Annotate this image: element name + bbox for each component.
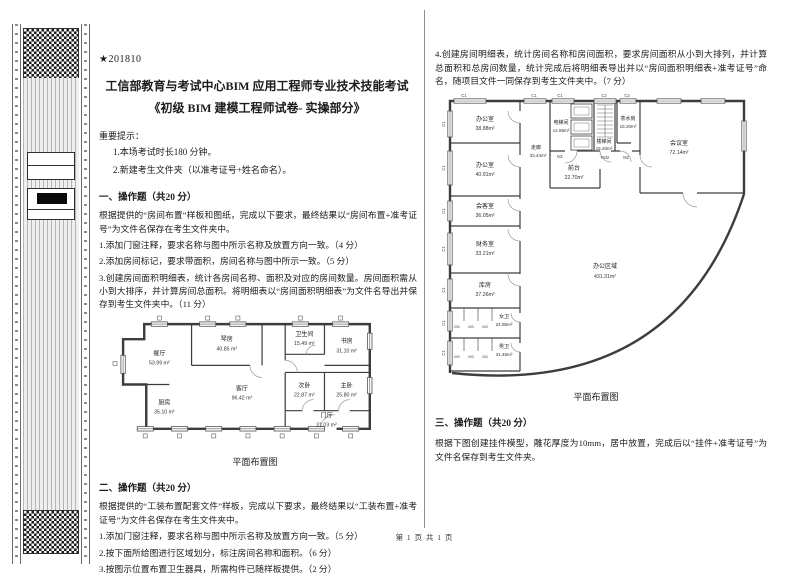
room-label: 茶水房 bbox=[620, 115, 635, 122]
window-tag: C1 bbox=[441, 208, 446, 214]
column-divider bbox=[424, 10, 425, 528]
crosshatch-block-top bbox=[23, 28, 79, 80]
room-label: 财务室 bbox=[476, 240, 494, 248]
binding-rail-right bbox=[81, 24, 90, 564]
room-area: 37.26m² bbox=[475, 292, 494, 298]
door-tag: M3 bbox=[482, 325, 487, 329]
room-label: 客厅 bbox=[236, 385, 248, 393]
door-tag: M3 bbox=[482, 355, 487, 359]
strip-black-mark bbox=[37, 193, 67, 204]
window-tag: C1 bbox=[441, 121, 446, 127]
window-tag: C1 bbox=[441, 320, 446, 326]
exam-title-line2: 《初级 BIM 建模工程师试卷- 实操部分》 bbox=[97, 99, 417, 116]
room-label: 书房 bbox=[341, 337, 353, 345]
window-tag: C1 bbox=[441, 350, 446, 356]
left-column: ★201810 工信部教育与考试中心BIM 应用工程师专业技术技能考试 《初级 … bbox=[97, 8, 417, 576]
door-tag: M3 bbox=[454, 355, 459, 359]
room-label: 琴房 bbox=[221, 335, 233, 343]
window-tag: C1 bbox=[461, 93, 467, 98]
page-footer: 第 1 页 共 1 页 bbox=[352, 532, 497, 543]
binding-strip bbox=[12, 10, 90, 568]
door-tag: M3 bbox=[468, 325, 473, 329]
crosshatch-block-bottom bbox=[23, 510, 79, 554]
room-label: 楼梯间 bbox=[596, 138, 611, 145]
floor-plan-1-svg: 餐厅 53.99 m² 琴房 40.85 m² 卫生间 15.49 m² 书房 … bbox=[109, 315, 401, 448]
exam-title-line1: 工信部教育与考试中心BIM 应用工程师专业技术技能考试 bbox=[97, 77, 417, 94]
section3-heading: 三、操作题（共20 分） bbox=[435, 415, 767, 429]
room-label: 电梯间 bbox=[553, 119, 568, 126]
binding-strip-inner bbox=[23, 24, 79, 564]
section1-heading: 一、操作题（共20 分） bbox=[99, 189, 417, 203]
room-label: 主卧 bbox=[341, 382, 353, 390]
room-label: 会客室 bbox=[476, 202, 494, 210]
window-tag: C1 bbox=[531, 93, 537, 98]
room-label: 会议室 bbox=[670, 139, 688, 147]
room-area: 40.91m² bbox=[475, 172, 494, 178]
section2-item-3: 3.按图示位置布置卫生器具，所需构件已随样板提供。（2 分） bbox=[99, 563, 417, 576]
door-tag: M3 bbox=[468, 355, 473, 359]
strip-label-box-2 bbox=[27, 188, 75, 220]
room-area: 22.70m² bbox=[564, 175, 583, 181]
section3-intro: 根据下图创建挂件模型，雕花厚度为10mm，居中放置，完成后以“挂件+准考证号”为… bbox=[435, 437, 767, 464]
room-area: 25.80 m² bbox=[336, 393, 357, 399]
floor-plan-2: C1 C1 C1 C2 C2 C1 C1 C1 C1 C1 C1 C1 M1 F… bbox=[437, 91, 767, 388]
window-tag: C1 bbox=[441, 287, 446, 293]
room-area: 15.20m² bbox=[596, 146, 613, 151]
room-area: 31.45m² bbox=[496, 352, 513, 357]
barcode-lines bbox=[23, 78, 79, 512]
notice-heading: 重要提示： bbox=[99, 129, 417, 142]
room-area: 15.49 m² bbox=[294, 341, 315, 347]
room-label: 卫生间 bbox=[295, 330, 313, 338]
right-column: 4.创建房间明细表，统计房间名称和房间面积，要求房间面积从小到大排列，并计算总面… bbox=[433, 8, 767, 464]
exam-code: ★201810 bbox=[99, 54, 417, 65]
strip-box-divider-2 bbox=[28, 209, 74, 210]
room-area: 33.44m² bbox=[530, 153, 547, 158]
room-area: 14.85m² bbox=[553, 128, 570, 133]
room-label: 办公室 bbox=[476, 115, 494, 123]
floor-plan-2-svg: C1 C1 C1 C2 C2 C1 C1 C1 C1 C1 C1 C1 M1 F… bbox=[437, 91, 755, 383]
room-label: 走廊 bbox=[531, 144, 541, 151]
floor-plan-1: 餐厅 53.99 m² 琴房 40.85 m² 卫生间 15.49 m² 书房 … bbox=[109, 315, 417, 453]
window-tag: C2 bbox=[601, 93, 607, 98]
door-tag: FM2 bbox=[601, 155, 610, 160]
room-label: 门厅 bbox=[320, 412, 332, 420]
door-tag: M2 bbox=[623, 155, 629, 160]
room-area: 33.21m² bbox=[475, 251, 494, 257]
notice-item-1: 1.本场考试时长180 分钟。 bbox=[113, 146, 417, 160]
plan2-caption: 平面布置图 bbox=[437, 390, 755, 403]
plan2-elevators bbox=[571, 104, 592, 150]
section1-item-1: 1.添加门窗注释，要求名称与图中所示名称及放置方向一致。（4 分） bbox=[99, 239, 417, 252]
room-label: 男卫 bbox=[499, 344, 509, 350]
window-tag: C1 bbox=[441, 246, 446, 252]
plan1-caption: 平面布置图 bbox=[109, 455, 401, 468]
plan2-stairs bbox=[597, 105, 613, 137]
section2-heading: 二、操作题（共20 分） bbox=[99, 480, 417, 494]
window-tag: C2 bbox=[624, 93, 630, 98]
room-area: 24.95m² bbox=[496, 322, 513, 327]
room-area: 40.85 m² bbox=[217, 346, 238, 352]
strip-box-divider bbox=[28, 165, 74, 166]
plan1-room-labels: 餐厅 53.99 m² 琴房 40.85 m² 卫生间 15.49 m² 书房 … bbox=[149, 330, 357, 428]
room-area: 31.10 m² bbox=[336, 348, 357, 354]
room-label: 库房 bbox=[479, 281, 491, 289]
room-label: 次卧 bbox=[298, 382, 310, 390]
door-tag: M3 bbox=[454, 325, 459, 329]
section1-item-2: 2.添加房间标记，要求带面积，房间名称与图中所示一致。（5 分） bbox=[99, 255, 417, 268]
room-area: 15.20m² bbox=[620, 124, 637, 129]
section2-intro: 根据提供的“工装布置配套文件”样板，完成以下要求，最终结果以“工装布置+准考证号… bbox=[99, 500, 417, 527]
room-area: 431.31m² bbox=[594, 274, 616, 280]
room-label: 办公室 bbox=[476, 161, 494, 169]
room-label: 餐厅 bbox=[153, 350, 165, 358]
section1-item-3: 3.创建房间面积明细表，统计各房间名称、面积及对应的房间数量。房间面积需从小到大… bbox=[99, 272, 417, 312]
strip-label-box-1 bbox=[27, 152, 75, 180]
room-area: 35.10 m² bbox=[154, 410, 175, 416]
door-tag: M1 bbox=[557, 154, 563, 159]
window-tag: C1 bbox=[557, 93, 563, 98]
plan1-window-tags bbox=[113, 316, 353, 438]
binding-rail-left bbox=[12, 24, 21, 564]
room-area: 72.14m² bbox=[669, 150, 688, 156]
section2-item-2: 2.按下面所给图进行区域划分，标注房间名称和面积。（6 分） bbox=[99, 547, 417, 560]
room-label: 前台 bbox=[568, 164, 580, 172]
room-area: 31.03 m² bbox=[316, 422, 337, 428]
room-area: 96.42 m² bbox=[232, 396, 253, 402]
room-label: 厨房 bbox=[158, 399, 170, 407]
room-area: 38.88m² bbox=[475, 126, 494, 132]
room-label: 办公区域 bbox=[593, 262, 617, 270]
notice-item-2: 2.新建考生文件夹（以准考证号+姓名命名）。 bbox=[113, 164, 417, 178]
window-tag: C1 bbox=[441, 165, 446, 171]
room-area: 36.05m² bbox=[475, 213, 494, 219]
section1-intro: 根据提供的“房间布置”样板和图纸，完成以下要求，最终结果以“房间布置+准考证号”… bbox=[99, 209, 417, 236]
room-area: 22.87 m² bbox=[294, 393, 315, 399]
section2-item-4: 4.创建房间明细表，统计房间名称和房间面积，要求房间面积从小到大排列，并计算总面… bbox=[435, 48, 767, 89]
room-area: 53.99 m² bbox=[149, 361, 170, 367]
room-label: 女卫 bbox=[499, 313, 509, 320]
